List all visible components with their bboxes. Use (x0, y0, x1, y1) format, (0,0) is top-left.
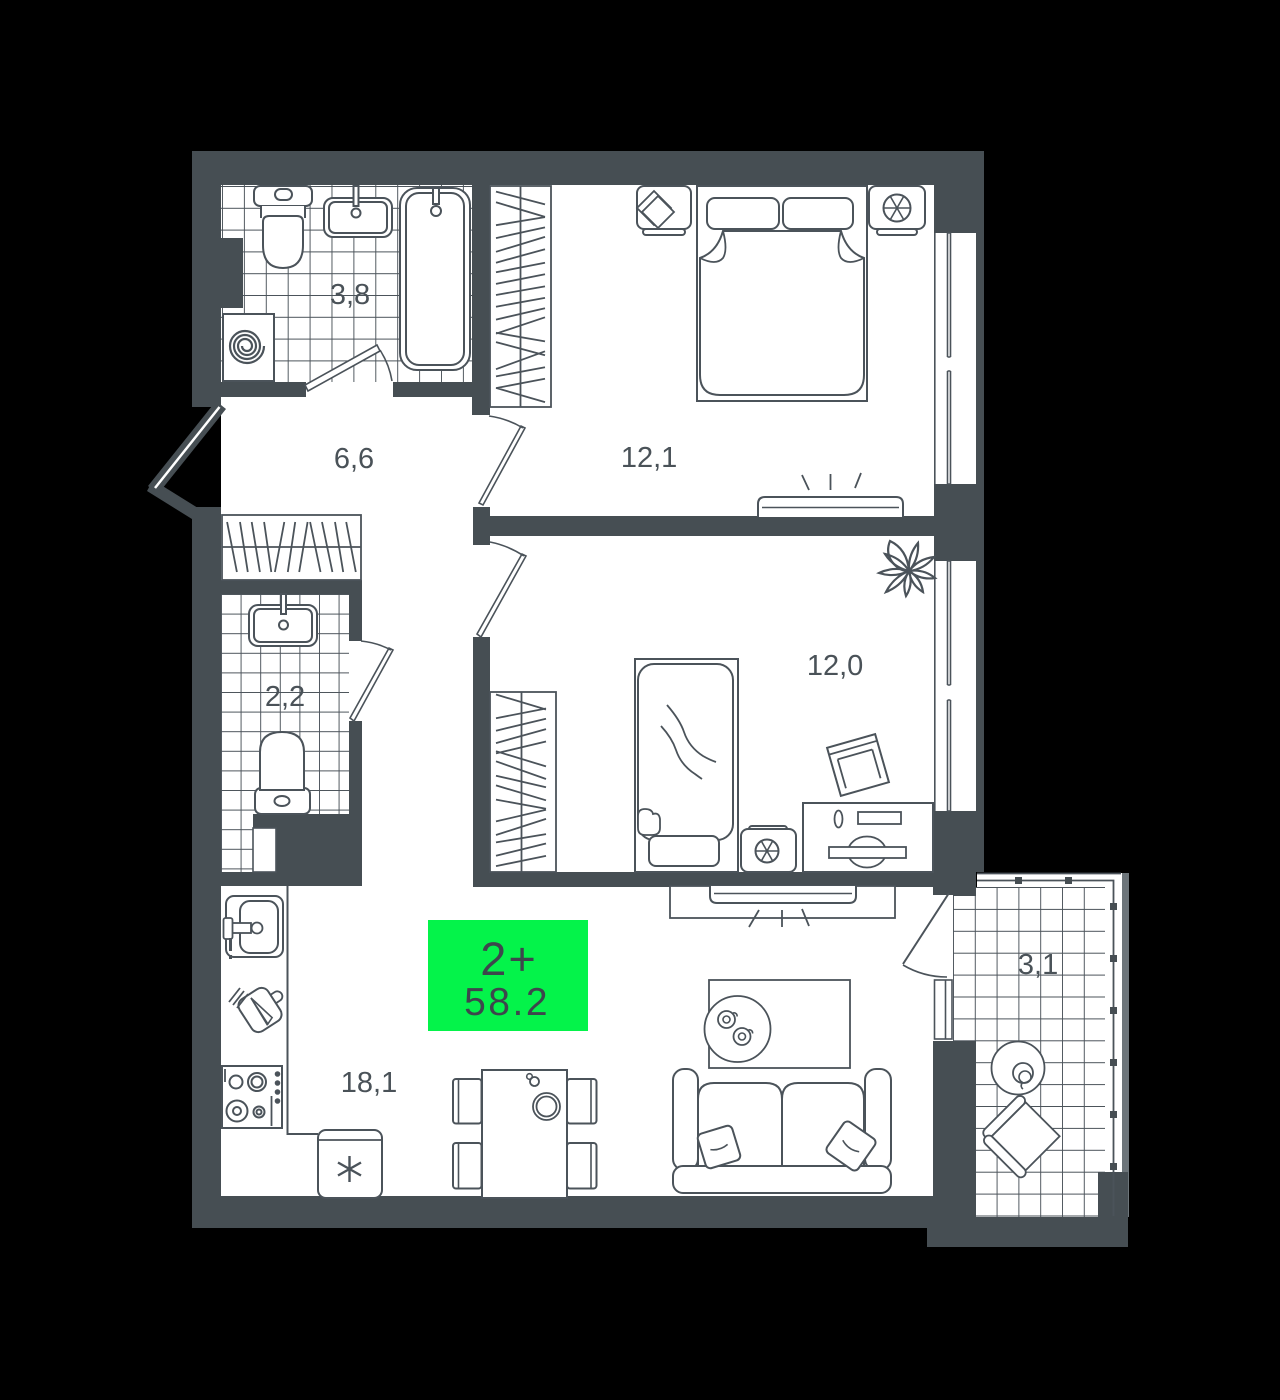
svg-text:18,1: 18,1 (341, 1067, 397, 1099)
svg-text:58.2: 58.2 (464, 981, 550, 1024)
svg-text:12,0: 12,0 (807, 650, 863, 682)
svg-text:2+: 2+ (480, 932, 538, 985)
svg-text:2,2: 2,2 (265, 681, 305, 713)
svg-text:12,1: 12,1 (621, 442, 677, 474)
svg-text:6,6: 6,6 (334, 443, 374, 475)
svg-text:3,1: 3,1 (1018, 949, 1058, 981)
svg-text:3,8: 3,8 (330, 279, 370, 311)
